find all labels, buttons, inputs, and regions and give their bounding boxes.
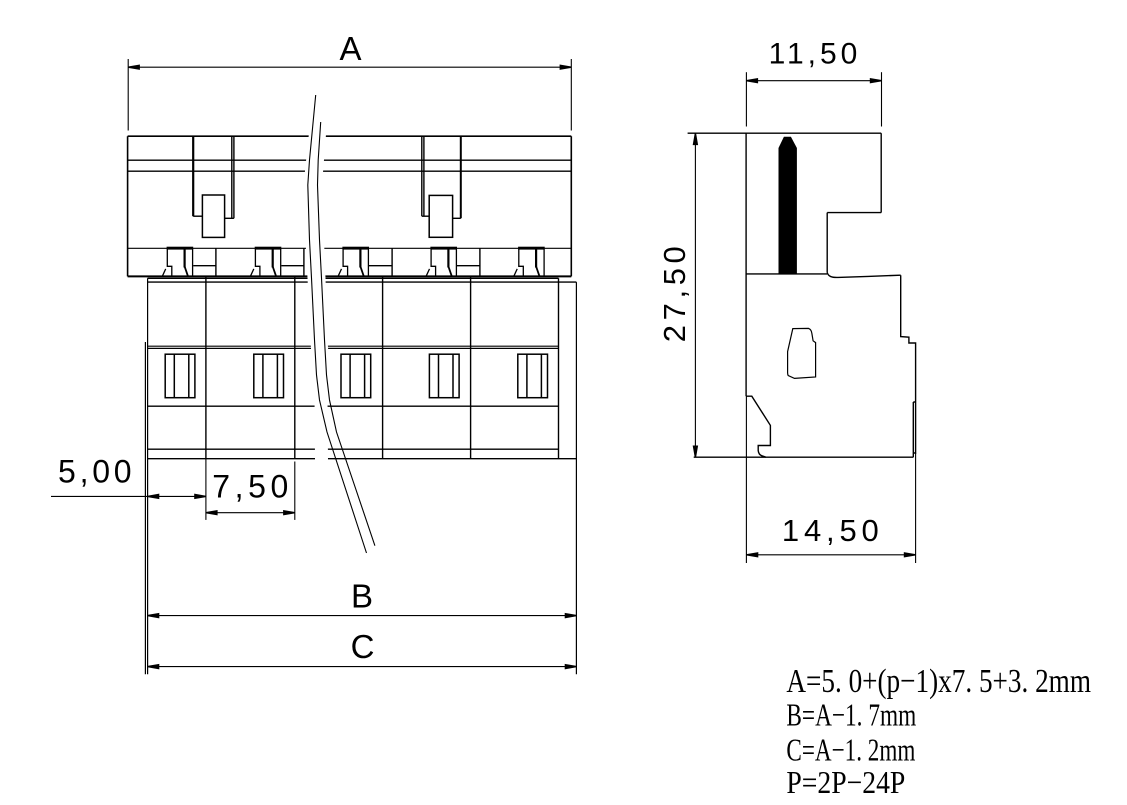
svg-text:B: B [351, 577, 373, 614]
svg-text:27,50: 27,50 [657, 246, 692, 342]
svg-text:A=5. 0+(p−1)x7. 5+3. 2mm: A=5. 0+(p−1)x7. 5+3. 2mm [786, 663, 1091, 700]
svg-text:C=A−1. 2mm: C=A−1. 2mm [786, 732, 915, 768]
svg-text:A: A [339, 30, 361, 67]
svg-text:C: C [351, 628, 375, 665]
svg-text:14,50: 14,50 [782, 513, 879, 548]
svg-text:11,50: 11,50 [769, 38, 858, 71]
svg-text:B=A−1. 7mm: B=A−1. 7mm [786, 697, 916, 733]
svg-text:P=2P−24P: P=2P−24P [786, 764, 905, 800]
svg-text:5,00: 5,00 [58, 454, 132, 490]
svg-text:7,50: 7,50 [212, 468, 288, 504]
